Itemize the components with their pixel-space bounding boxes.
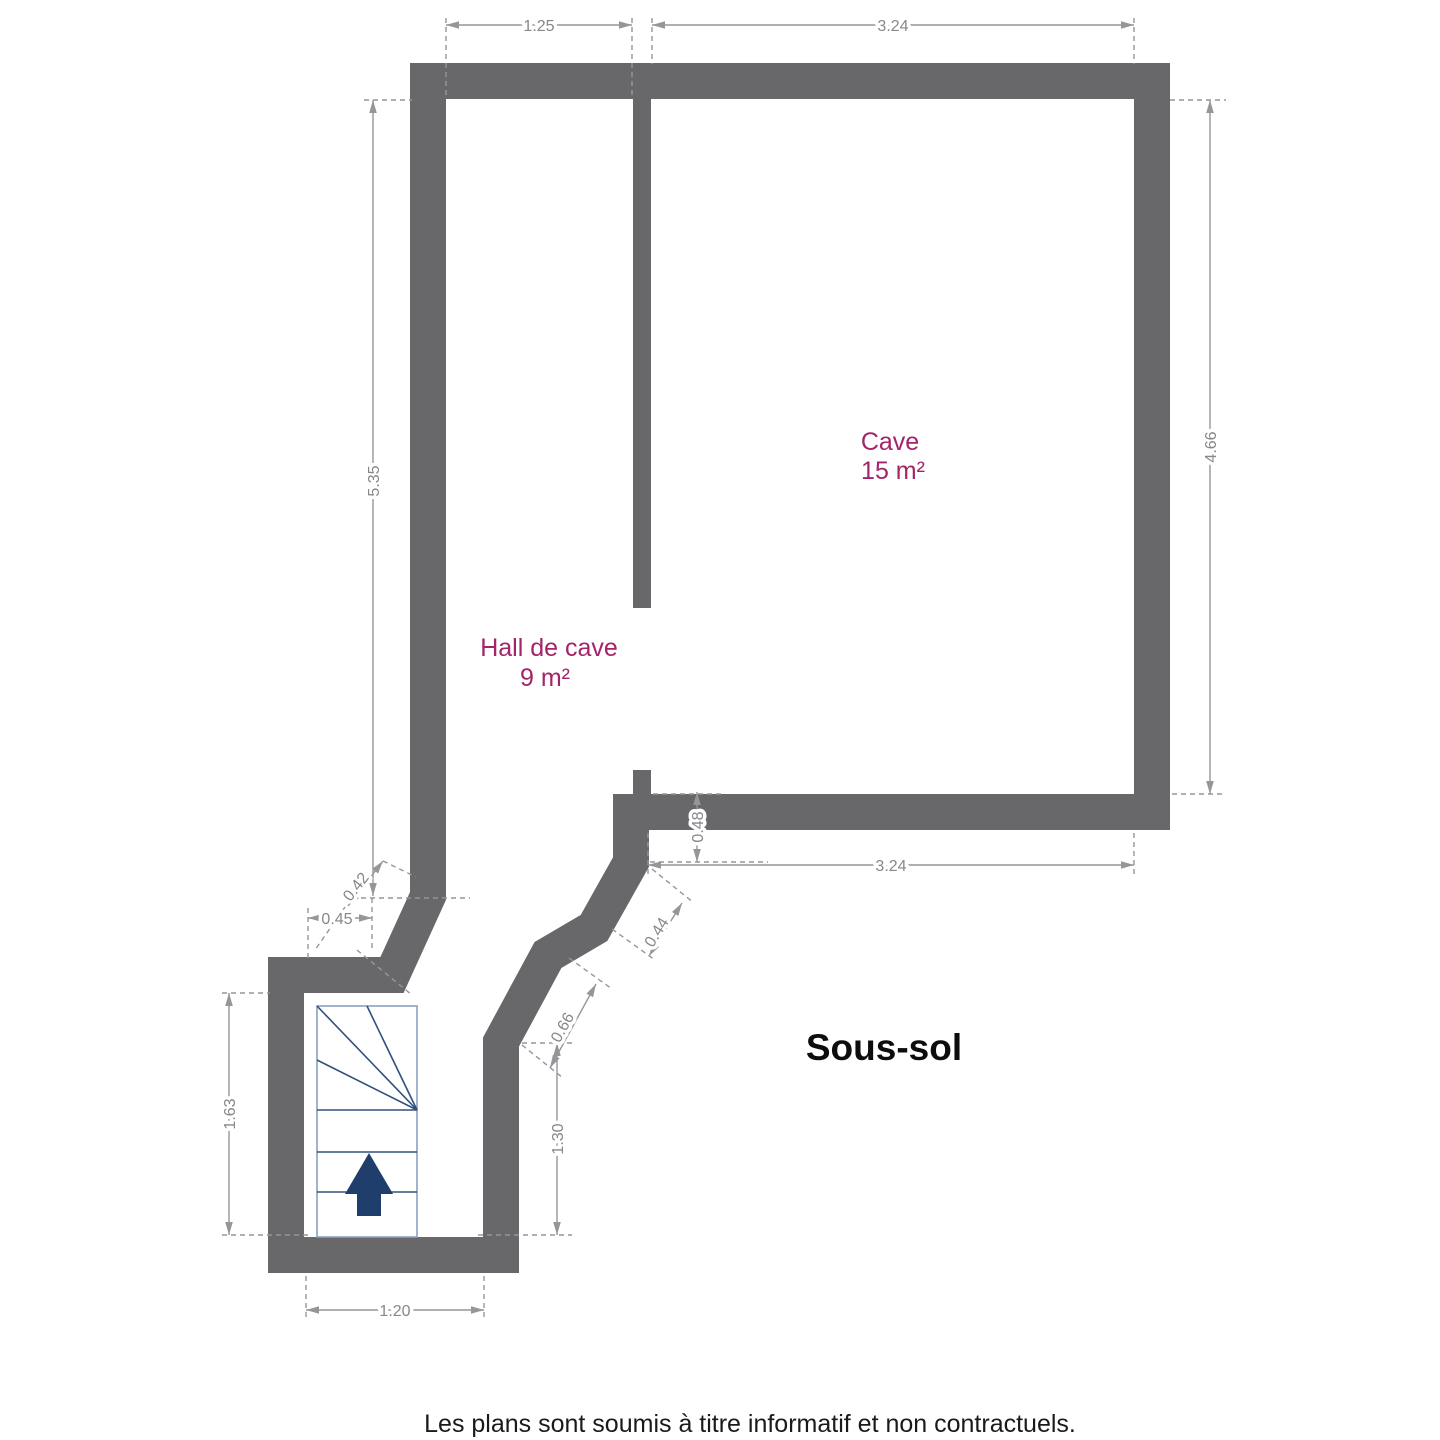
room-area-cave: 15 m²	[861, 457, 925, 485]
dim-top-hall-width: 1.25	[523, 18, 554, 35]
dim-stair-room-height: 1.63	[222, 1098, 239, 1129]
dim-passage-diagonal: 0.44	[642, 915, 673, 951]
disclaimer-text: Les plans sont soumis à titre informatif…	[424, 1410, 1076, 1438]
dim-cave-height: 4.66	[1203, 431, 1220, 462]
staircase	[317, 1006, 417, 1237]
room-labels: Cave 15 m² Hall de cave 9 m²	[480, 428, 925, 692]
dim-stair-room-width: 1.20	[379, 1303, 410, 1320]
dim-corridor-height: 1.30	[550, 1123, 567, 1154]
room-area-hall: 9 m²	[520, 664, 570, 692]
dim-hall-height: 5.35	[366, 465, 383, 496]
dim-corridor-diagonal: 0.66	[548, 1010, 578, 1046]
room-name-cave: Cave	[861, 428, 919, 456]
floor-plan-canvas: 1.25 3.24 5.35 4.66 0.48 3.24 0.45 0.42 …	[0, 0, 1440, 1440]
wall-divider-stub	[633, 770, 651, 794]
room-name-hall: Hall de cave	[480, 634, 618, 662]
floor-plan-page: 1.25 3.24 5.35 4.66 0.48 3.24 0.45 0.42 …	[0, 0, 1440, 1440]
dim-hall-notch-width: 0.45	[321, 911, 352, 928]
wall-divider	[633, 64, 651, 608]
dim-hall-diagonal: 0.42	[340, 870, 373, 905]
dim-cave-wall-offset: 0.48	[690, 811, 707, 842]
dim-cave-bottom-width: 3.24	[875, 858, 906, 875]
floor-title: Sous-sol	[806, 1027, 962, 1068]
dim-top-cave-width: 3.24	[877, 18, 908, 35]
